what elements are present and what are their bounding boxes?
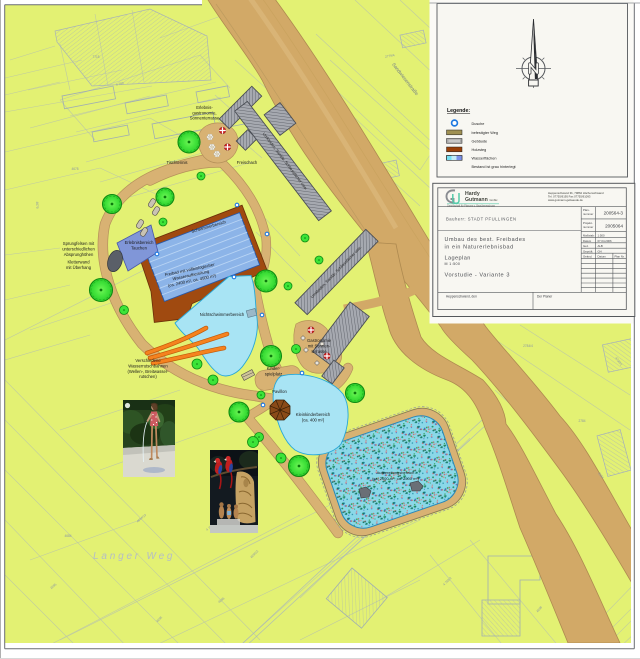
svg-text:7715: 7715 [92,55,99,59]
svg-text:GmbH: GmbH [490,198,498,202]
svg-text:1:500: 1:500 [598,233,605,237]
svg-text:Gesellschaft für Planung u. Ba: Gesellschaft für Planung u. Bauüberwachu… [447,204,496,207]
svg-text:ALB: ALB [598,244,603,248]
svg-text:(Wellen-, Breitwasser-: (Wellen-, Breitwasser- [127,369,169,374]
svg-text:terrasse: terrasse [311,349,327,354]
svg-text:spielplatz: spielplatz [265,371,282,376]
svg-text:Vorstudie - Variante 3: Vorstudie - Variante 3 [445,273,510,279]
svg-text:4679: 4679 [35,201,39,208]
svg-text:Lageplan: Lageplan [445,256,471,262]
svg-text:Kinder-: Kinder- [267,366,281,371]
svg-text:4684: 4684 [64,534,71,538]
svg-text:Bestand ist grau hinterlegt: Bestand ist grau hinterlegt [472,165,517,169]
svg-text:Bauherr: STADT PFULLINGEN: Bauherr: STADT PFULLINGEN [446,217,517,222]
svg-text:GH: GH [598,249,602,253]
svg-text:(ca. 2000 m², ca. 2500 m²): (ca. 2000 m², ca. 2500 m²) [372,476,420,481]
svg-text:Langer Weg: Langer Weg [93,551,175,562]
svg-text:200564-3: 200564-3 [604,211,624,216]
svg-text:Tauchen: Tauchen [131,245,148,250]
svg-text:Datum: Datum [598,254,607,258]
svg-text:Heppenschwand, den: Heppenschwand, den [446,295,477,299]
svg-text:Dusche: Dusche [472,122,485,126]
svg-text:gastronomie,: gastronomie, [192,110,216,115]
svg-text:Erlebnisbereich: Erlebnisbereich [125,240,155,245]
svg-text:Geänd.: Geänd. [583,254,592,258]
svg-text:mit Überhang: mit Überhang [66,265,92,270]
svg-text:nummer: nummer [583,225,593,229]
svg-text:Umbau des best. Freibades: Umbau des best. Freibades [445,237,526,243]
svg-text:unterschiedlichen: unterschiedlichen [62,246,95,251]
svg-text:Sprungfelsen mit: Sprungfelsen mit [63,241,95,246]
svg-text:Gez.: Gez. [583,244,589,248]
svg-text:Freischach: Freischach [237,160,258,165]
svg-text:befestigter Weg: befestigter Weg [472,131,499,135]
svg-text:(ca. 400 m²): (ca. 400 m²) [302,418,325,423]
svg-text:Der Planer: Der Planer [537,295,553,299]
svg-text:Datum: Datum [583,239,592,243]
svg-text:Kleinkinderbereich: Kleinkinderbereich [296,412,331,417]
svg-text:Wasserflächen: Wasserflächen [472,157,497,161]
svg-text:in ein Naturerlebnisbad: in ein Naturerlebnisbad [445,245,514,251]
svg-text:www.gutmann-gebaeude.de: www.gutmann-gebaeude.de [548,198,583,202]
svg-text:Gutmann: Gutmann [465,197,488,203]
svg-text:07.04.2006: 07.04.2006 [598,239,612,243]
svg-text:Legende:: Legende: [447,108,470,114]
svg-text:rutschen): rutschen) [139,374,157,379]
svg-text:Pavillon: Pavillon [272,389,287,394]
svg-text:Holzsteg: Holzsteg [472,148,487,152]
svg-text:Gastronomie: Gastronomie [307,338,332,343]
svg-text:Sonnenterrasse: Sonnenterrasse [190,116,220,121]
svg-text:Verschiedene: Verschiedene [135,358,161,363]
svg-text:2784: 2784 [578,419,585,423]
svg-text:2005064: 2005064 [605,224,623,229]
svg-text:M 1:500: M 1:500 [445,262,461,266]
svg-text:Geprüft:: Geprüft: [583,249,593,253]
svg-text:2784/4: 2784/4 [523,344,533,348]
svg-text:Erlebnis-: Erlebnis- [196,105,213,110]
svg-text:Kletterwand: Kletterwand [67,260,90,265]
svg-text:nummer: nummer [583,212,593,216]
svg-text:4678: 4678 [71,167,78,171]
svg-text:Aufbereitungsbereich: Aufbereitungsbereich [377,470,415,475]
svg-text:Wasserrutschbahnen: Wasserrutschbahnen [128,363,168,368]
svg-text:Absprunghöhen: Absprunghöhen [64,252,94,257]
svg-text:Nichtschwimmerbereich: Nichtschwimmerbereich [200,312,245,317]
svg-text:Tischtennis: Tischtennis [166,160,187,165]
svg-text:Plan Nr.: Plan Nr. [615,254,625,258]
svg-text:Maßstab:: Maßstab: [583,233,595,237]
svg-text:mit Sonnen-: mit Sonnen- [308,343,331,348]
svg-text:Gebäude: Gebäude [472,140,488,144]
